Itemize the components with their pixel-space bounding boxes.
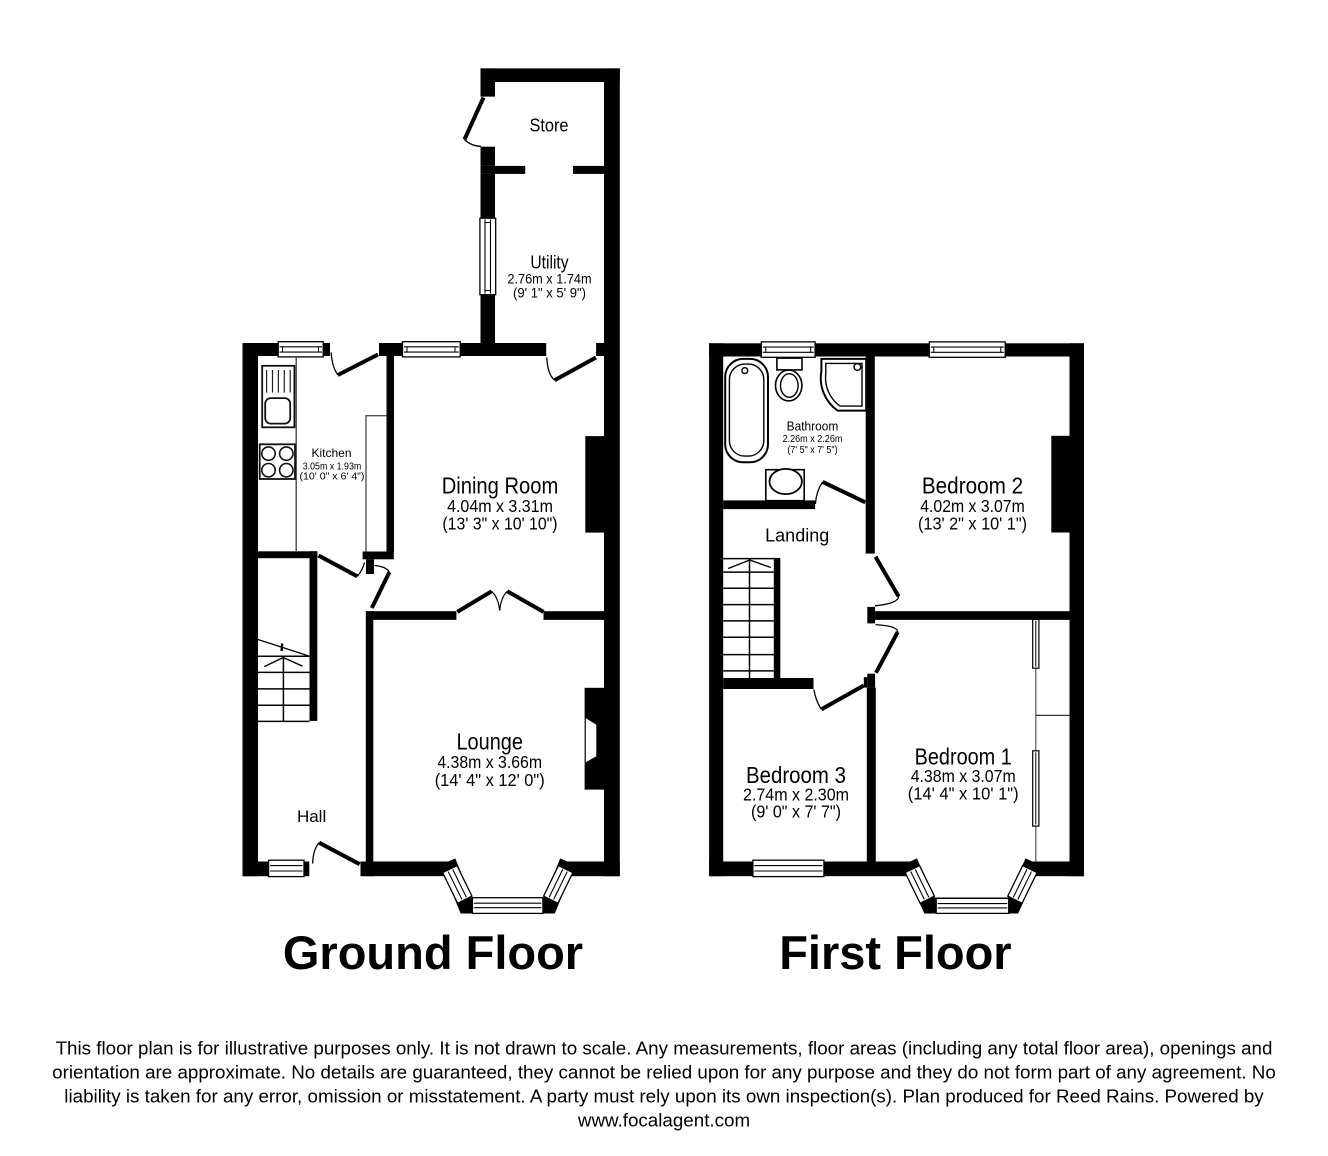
svg-text:(14' 4" x 12' 0"): (14' 4" x 12' 0") bbox=[435, 770, 545, 790]
svg-text:(13' 3" x 10' 10"): (13' 3" x 10' 10") bbox=[442, 514, 557, 534]
svg-text:Bathroom: Bathroom bbox=[787, 419, 839, 434]
svg-text:This floor plan is for illustr: This floor plan is for illustrative purp… bbox=[56, 1038, 1273, 1059]
svg-text:(9' 1" x 5' 9"): (9' 1" x 5' 9") bbox=[513, 285, 586, 301]
svg-text:www.focalagent.com: www.focalagent.com bbox=[577, 1110, 750, 1131]
svg-text:(13' 2" x 10' 1"): (13' 2" x 10' 1") bbox=[918, 514, 1027, 534]
svg-text:First Floor: First Floor bbox=[779, 926, 1011, 979]
svg-text:orientation are approximate. N: orientation are approximate. No details … bbox=[52, 1062, 1276, 1083]
svg-text:Bedroom 2: Bedroom 2 bbox=[922, 473, 1023, 499]
svg-text:liability is taken for any err: liability is taken for any error, omissi… bbox=[64, 1086, 1264, 1107]
svg-text:4.38m x 3.66m: 4.38m x 3.66m bbox=[437, 752, 542, 772]
svg-text:(10' 0" x 6' 4"): (10' 0" x 6' 4") bbox=[300, 472, 365, 483]
svg-text:Kitchen: Kitchen bbox=[311, 446, 351, 460]
svg-text:Lounge: Lounge bbox=[456, 729, 523, 755]
svg-text:Utility: Utility bbox=[530, 253, 568, 273]
svg-text:(14' 4" x 10' 1"): (14' 4" x 10' 1") bbox=[908, 784, 1019, 804]
svg-text:Ground Floor: Ground Floor bbox=[283, 926, 583, 979]
svg-text:Hall: Hall bbox=[297, 807, 326, 826]
svg-text:Store: Store bbox=[529, 116, 568, 136]
svg-text:(7' 5" x 7' 5"): (7' 5" x 7' 5") bbox=[787, 445, 837, 456]
svg-text:Landing: Landing bbox=[765, 526, 829, 546]
svg-text:(9' 0" x 7' 7"): (9' 0" x 7' 7") bbox=[751, 802, 841, 822]
svg-text:2.26m x 2.26m: 2.26m x 2.26m bbox=[783, 434, 843, 445]
svg-text:Dining Room: Dining Room bbox=[442, 473, 559, 499]
